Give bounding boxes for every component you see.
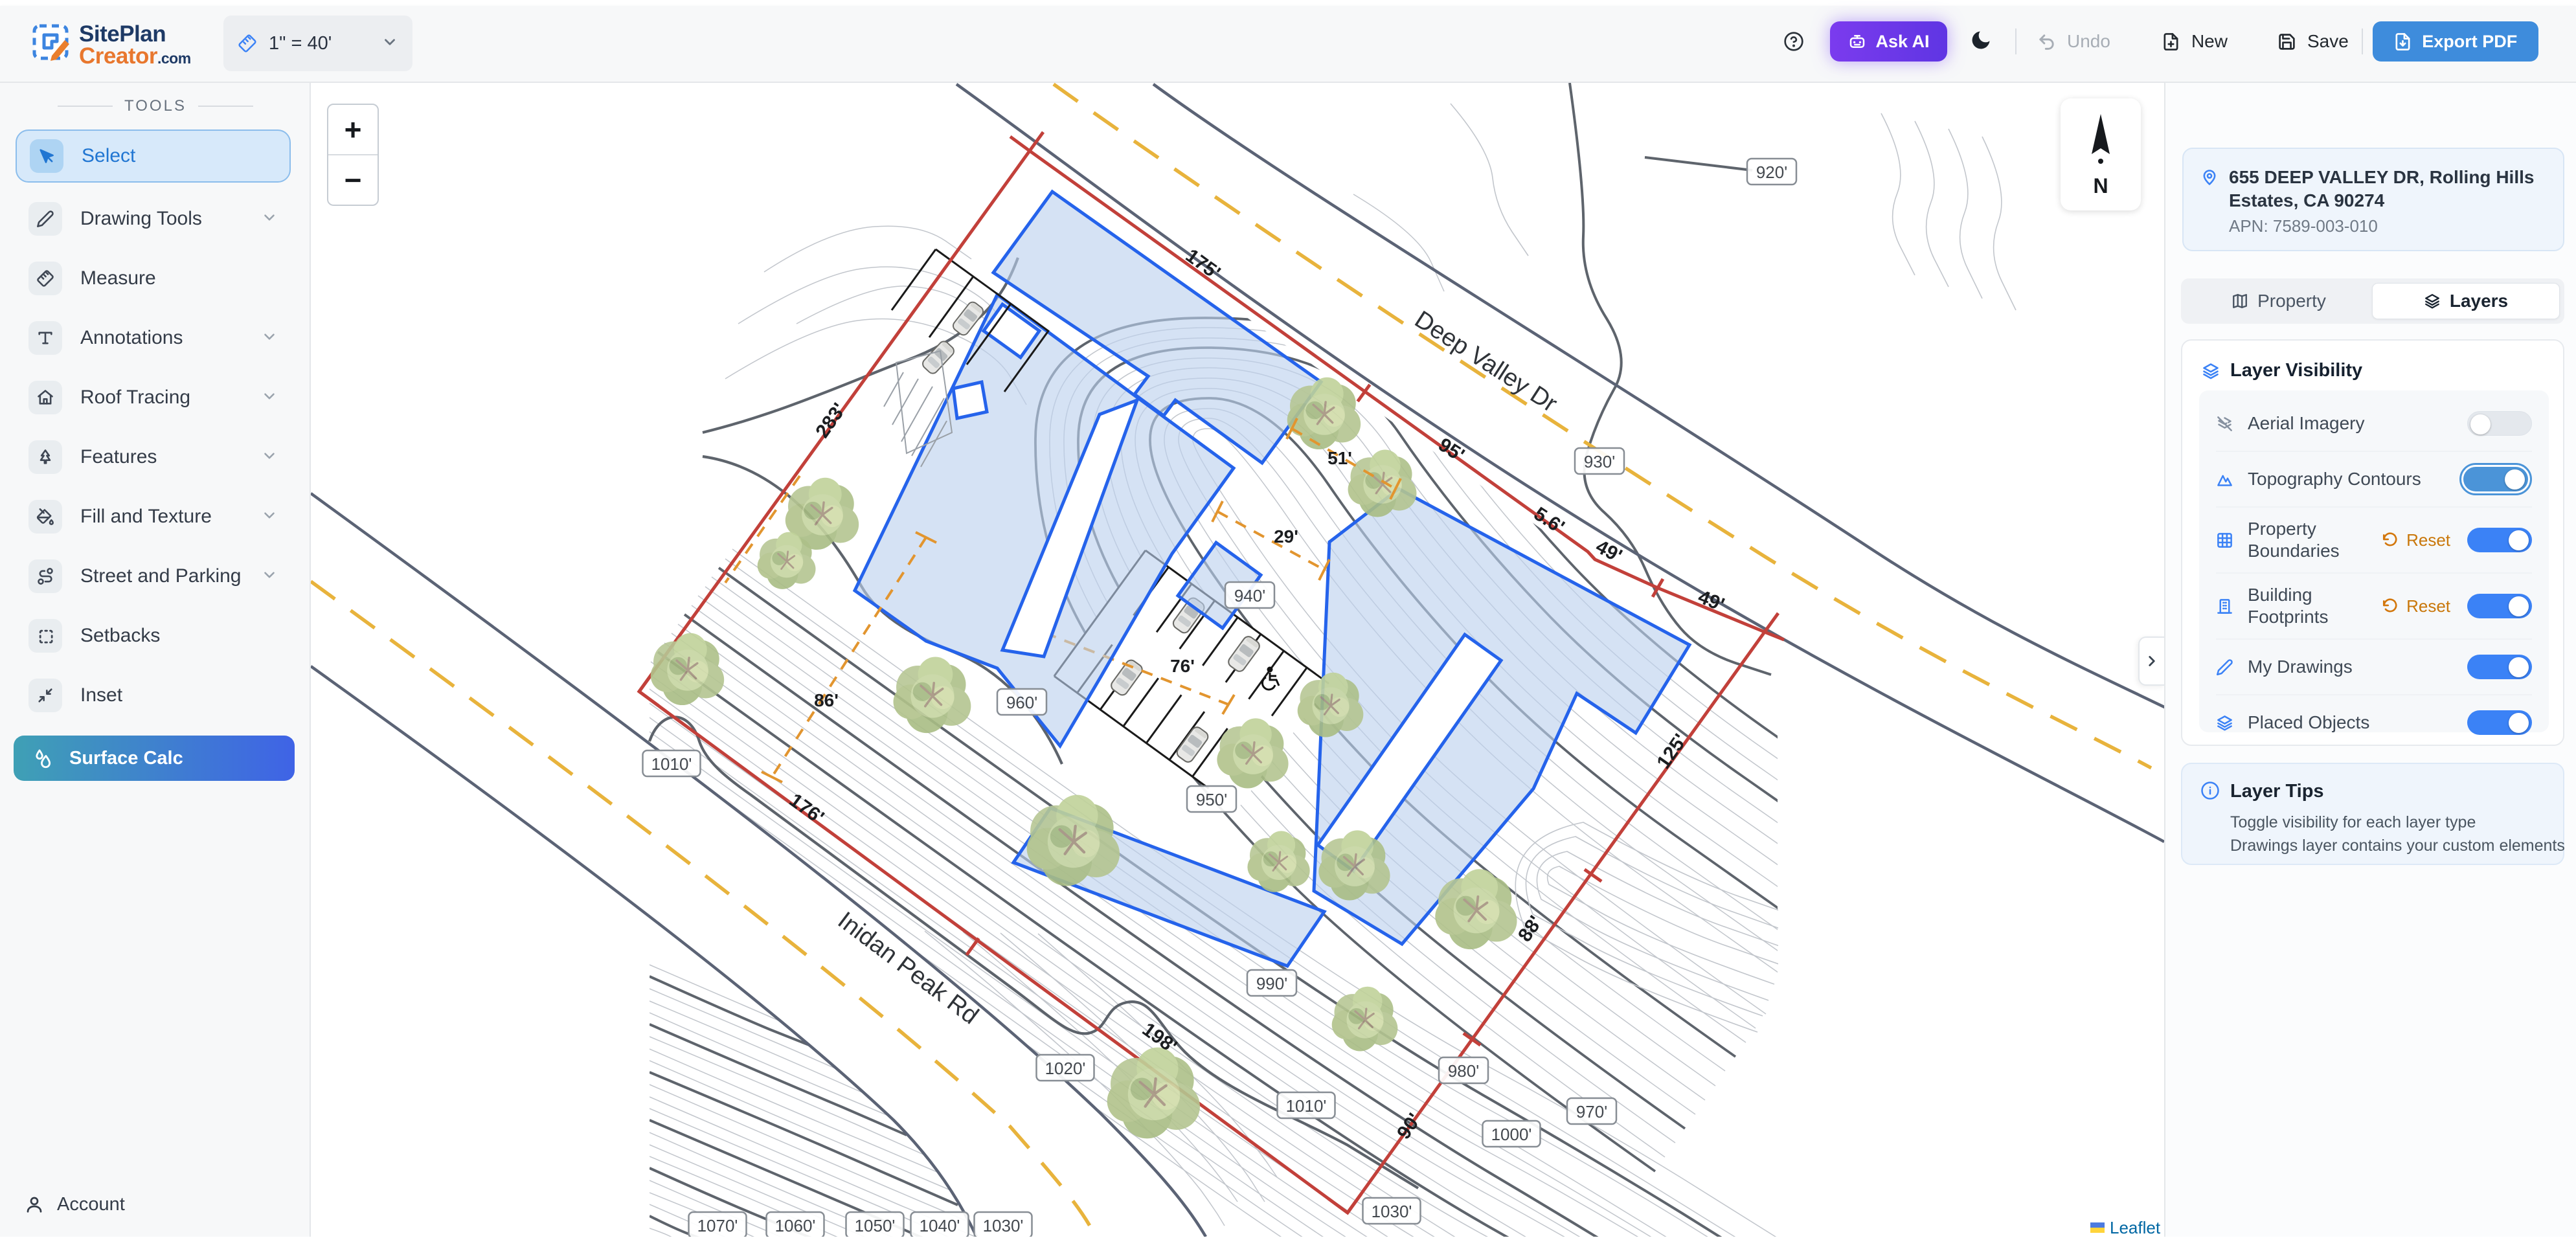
- svg-text:1010': 1010': [651, 754, 692, 774]
- svg-text:960': 960': [1006, 693, 1037, 712]
- svg-text:Deep Valley Dr: Deep Valley Dr: [1410, 306, 1562, 418]
- svg-text:1010': 1010': [1286, 1096, 1327, 1116]
- svg-text:176': 176': [785, 789, 828, 828]
- svg-text:980': 980': [1448, 1061, 1479, 1081]
- svg-text:76': 76': [1170, 656, 1195, 676]
- svg-text:1030': 1030': [983, 1216, 1024, 1235]
- svg-text:1040': 1040': [920, 1216, 960, 1235]
- svg-text:1070': 1070': [697, 1216, 738, 1235]
- svg-text:1050': 1050': [855, 1216, 896, 1235]
- svg-text:1000': 1000': [1491, 1125, 1532, 1144]
- svg-text:950': 950': [1196, 790, 1227, 809]
- svg-text:29': 29': [1274, 526, 1298, 546]
- svg-text:1030': 1030': [1372, 1202, 1412, 1221]
- svg-text:920': 920': [1756, 163, 1787, 182]
- svg-text:990': 990': [1256, 974, 1287, 993]
- svg-text:940': 940': [1234, 586, 1265, 605]
- svg-text:86': 86': [814, 690, 839, 710]
- svg-text:N: N: [2093, 174, 2108, 197]
- svg-text:175': 175': [1182, 245, 1225, 284]
- svg-text:970': 970': [1576, 1102, 1607, 1121]
- svg-text:51': 51': [1328, 448, 1352, 468]
- svg-text:930': 930': [1584, 452, 1615, 471]
- svg-text:1060': 1060': [775, 1216, 816, 1235]
- svg-text:49': 49': [1592, 536, 1625, 567]
- svg-text:1020': 1020': [1045, 1059, 1086, 1078]
